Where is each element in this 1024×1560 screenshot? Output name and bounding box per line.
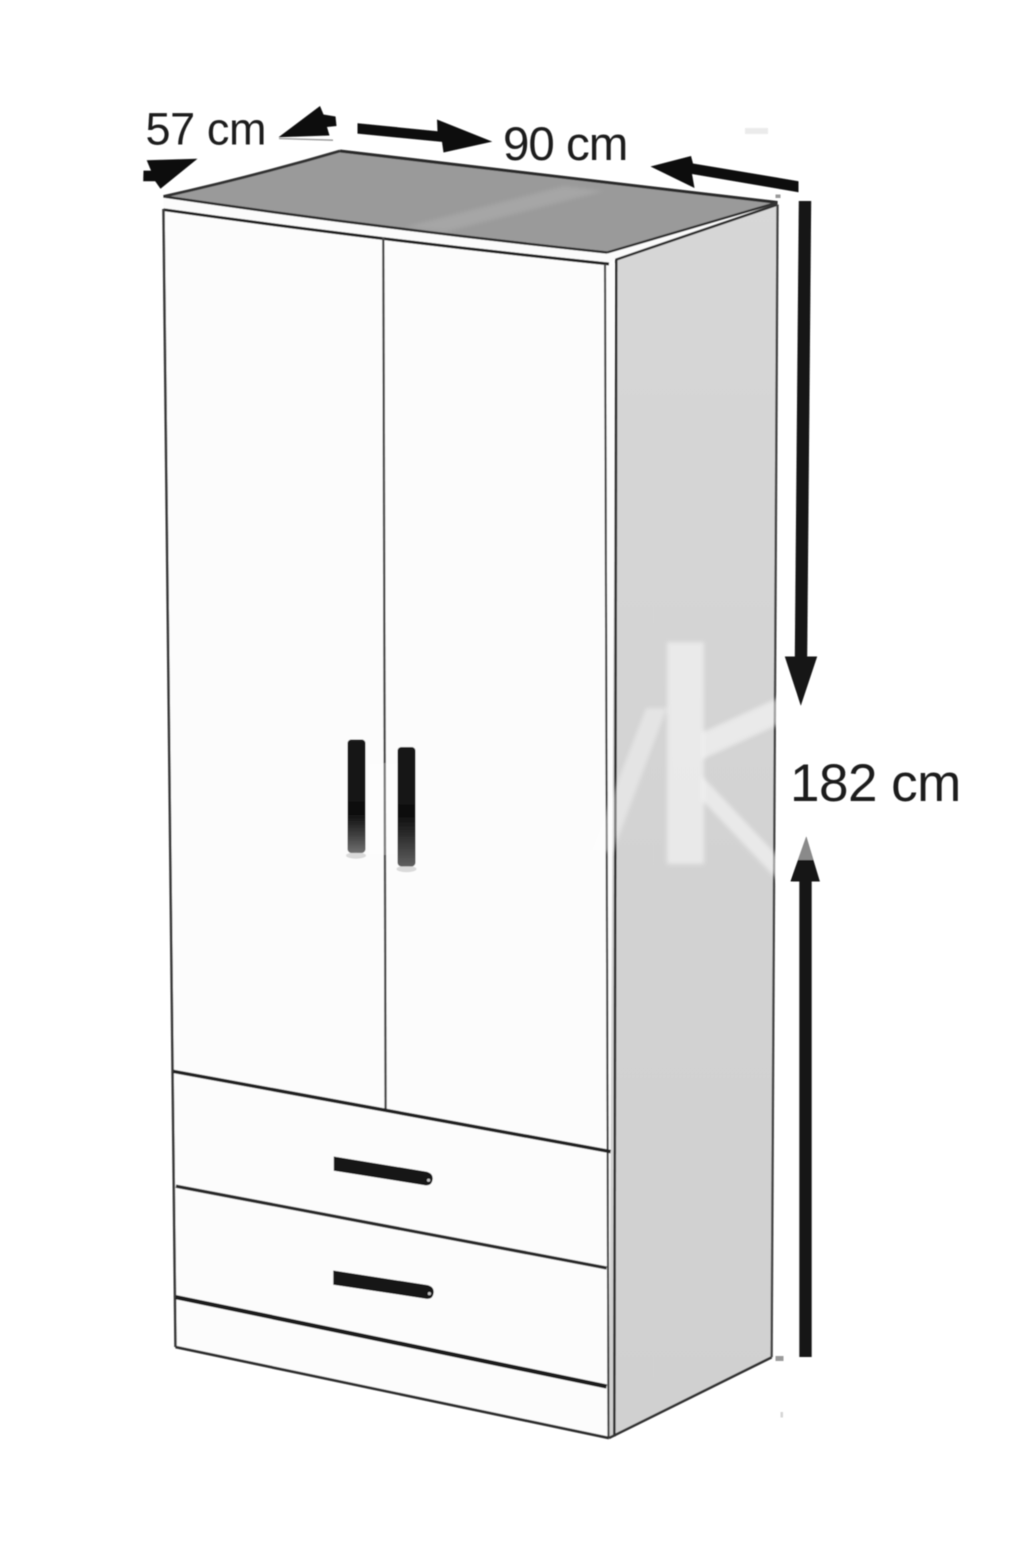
svg-text:57 cm: 57 cm [146,104,267,155]
svg-text:90 cm: 90 cm [503,118,627,171]
svg-text:182 cm: 182 cm [790,754,961,813]
